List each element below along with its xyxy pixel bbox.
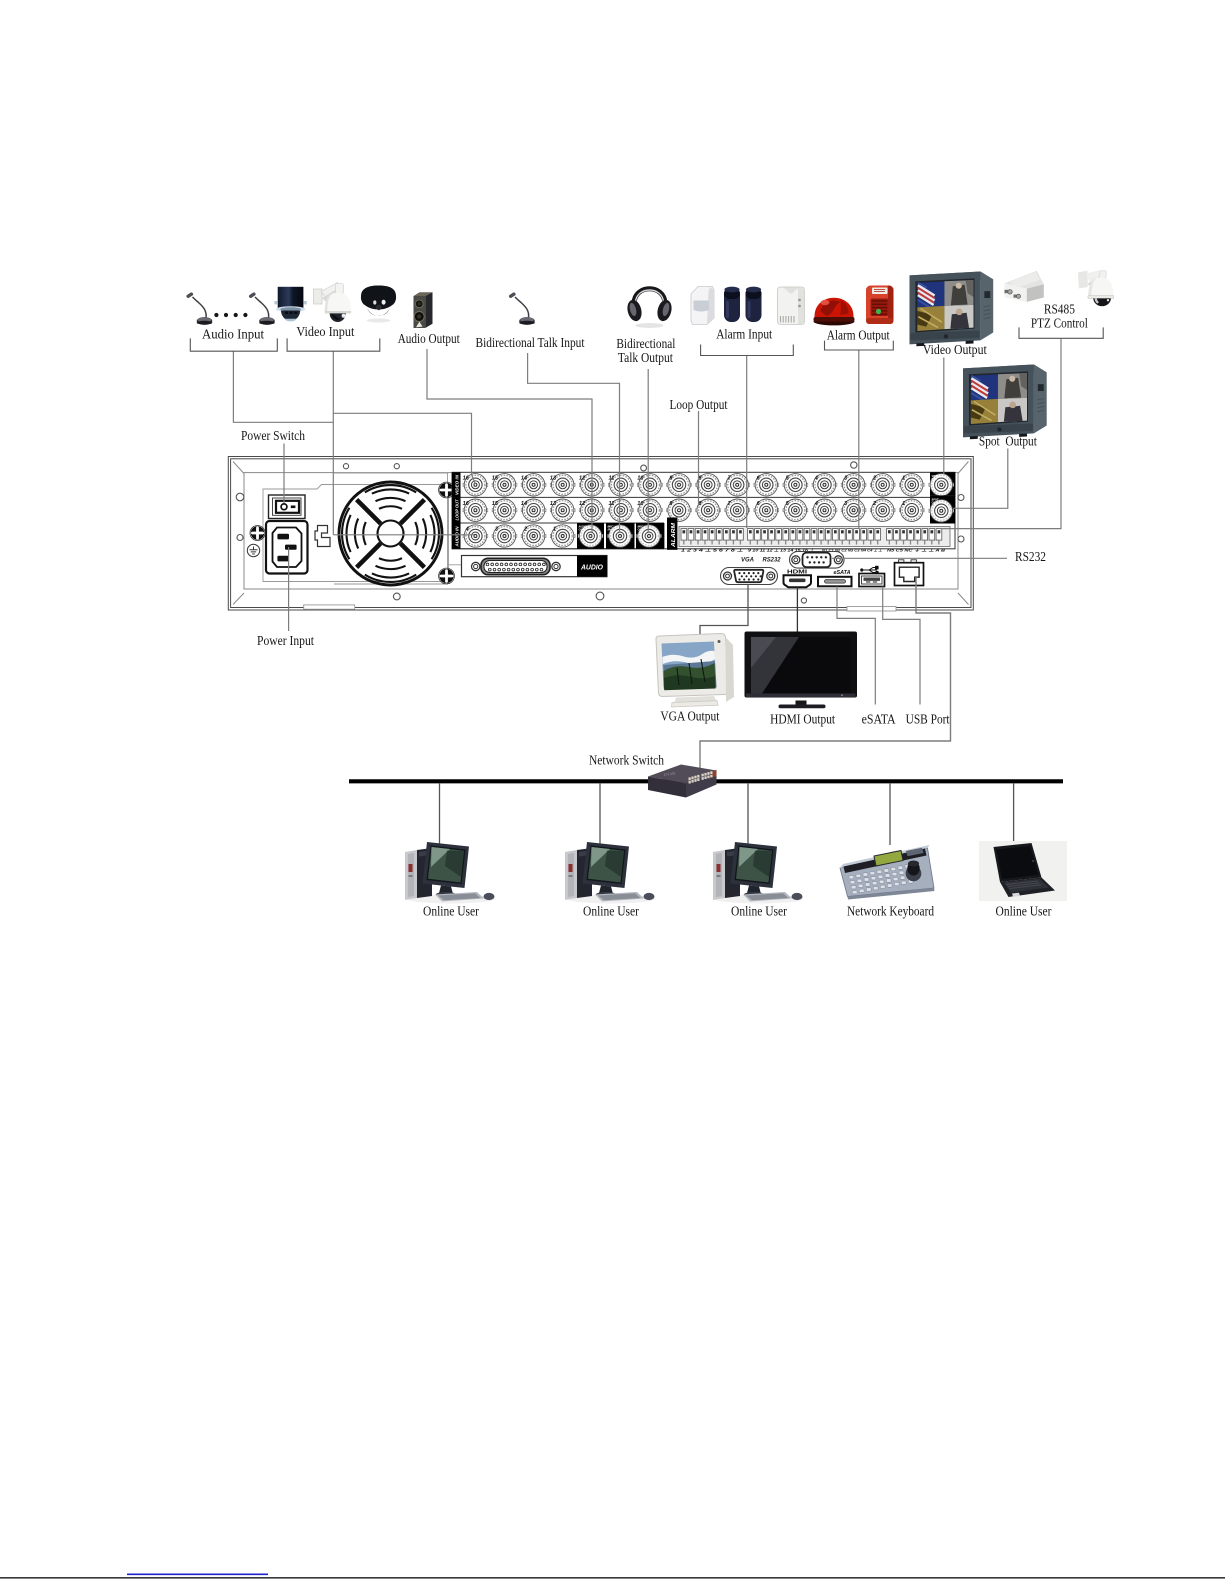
svg-text:ALARM: ALARM <box>671 522 677 548</box>
svg-text:10: 10 <box>637 476 644 482</box>
svg-text:11: 11 <box>609 501 615 507</box>
svg-text:Online User: Online User <box>996 904 1053 919</box>
svg-text:16: 16 <box>463 501 470 507</box>
svg-text:OUT: OUT <box>932 477 938 481</box>
svg-text:Bidirectional Talk Input: Bidirectional Talk Input <box>476 335 585 350</box>
svg-text:10: 10 <box>637 501 644 507</box>
svg-text:VIDEO IN: VIDEO IN <box>455 474 460 495</box>
svg-text:Online User: Online User <box>731 904 788 919</box>
svg-text:Audio Input: Audio Input <box>202 327 264 342</box>
svg-text:Online User: Online User <box>583 904 640 919</box>
svg-text:1: 1 <box>902 501 905 507</box>
svg-text:N5 C5 NC ⏚ ⊥ ⊥ A B: N5 C5 NC ⏚ ⊥ ⊥ A B <box>887 549 946 553</box>
svg-text:AUDIO IN: AUDIO IN <box>455 526 460 548</box>
svg-text:Bidirectional: Bidirectional <box>616 336 675 351</box>
svg-text:OUT: OUT <box>638 528 644 532</box>
svg-text:eSATA: eSATA <box>862 712 896 727</box>
svg-text:14: 14 <box>521 476 528 482</box>
svg-text:12: 12 <box>579 476 586 482</box>
svg-text:eSATA: eSATA <box>834 570 851 576</box>
svg-text:OUT: OUT <box>579 528 585 532</box>
svg-text:Alarm Output: Alarm Output <box>827 328 890 343</box>
svg-text:USB Port: USB Port <box>906 712 950 727</box>
svg-text:16: 16 <box>463 476 470 482</box>
svg-text:Video Input: Video Input <box>296 324 354 339</box>
svg-text:Network Keyboard: Network Keyboard <box>847 904 934 919</box>
svg-text:RS485: RS485 <box>1044 302 1075 317</box>
svg-text:Power Switch: Power Switch <box>241 428 305 443</box>
svg-text:12: 12 <box>579 501 586 507</box>
svg-text:11: 11 <box>609 476 615 482</box>
svg-text:15: 15 <box>492 476 499 482</box>
svg-text:Loop Output: Loop Output <box>670 397 728 412</box>
svg-text:1: 1 <box>553 527 556 533</box>
svg-text:Alarm Input: Alarm Input <box>716 327 772 342</box>
svg-text:14: 14 <box>521 501 528 507</box>
svg-text:VGA Output: VGA Output <box>660 709 719 724</box>
svg-text:Talk Output: Talk Output <box>618 350 673 365</box>
svg-text:LOOP OUT: LOOP OUT <box>455 499 460 520</box>
svg-text:VGA: VGA <box>741 558 754 564</box>
svg-text:OUT: OUT <box>932 500 938 504</box>
svg-text:1: 1 <box>902 476 905 482</box>
svg-text:Power Input: Power Input <box>257 633 314 648</box>
svg-text:15: 15 <box>492 501 499 507</box>
svg-text:RS232: RS232 <box>1015 549 1046 564</box>
svg-text:Network Switch: Network Switch <box>589 753 664 768</box>
svg-text:13: 13 <box>550 476 557 482</box>
svg-text:HDMI Output: HDMI Output <box>770 712 835 727</box>
svg-text:PTZ Control: PTZ Control <box>1031 316 1088 331</box>
svg-text:RS232: RS232 <box>763 558 782 564</box>
svg-text:Video Output: Video Output <box>923 342 987 357</box>
svg-text:Online User: Online User <box>423 904 480 919</box>
svg-text:Audio Output: Audio Output <box>398 331 460 346</box>
svg-text:1 2 3 4 ⊥ 5 6 7 8 ⊥: 1 2 3 4 ⊥ 5 6 7 8 ⊥ <box>681 548 743 553</box>
svg-text:AUDIO: AUDIO <box>580 565 604 572</box>
svg-text:13: 13 <box>550 501 557 507</box>
